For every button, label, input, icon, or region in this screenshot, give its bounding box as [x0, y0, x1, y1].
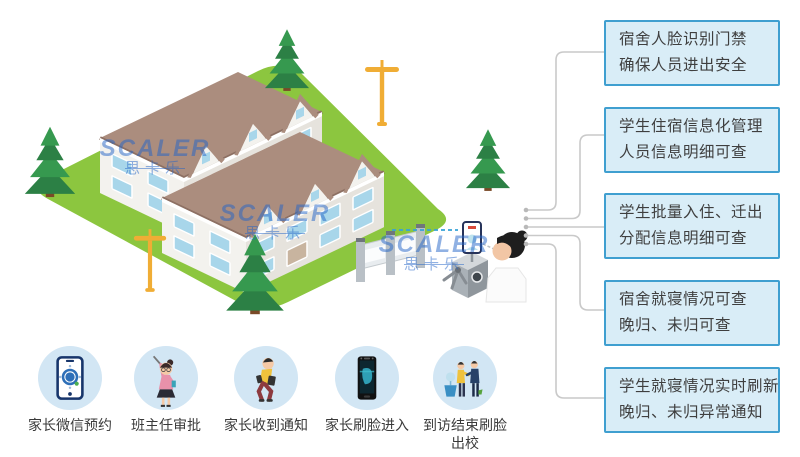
campus-scene-art: [0, 0, 600, 345]
step-wechat-booking: 家长微信预约: [15, 346, 125, 434]
callout-text: 确保人员进出安全: [619, 53, 778, 79]
step-parent-notified: 家长收到通知: [211, 346, 321, 434]
step-label: 家长微信预约: [22, 416, 118, 434]
street-lamp-icon: [365, 60, 399, 126]
step-face-entry: 家长刷脸进入: [312, 346, 422, 434]
step-teacher-approval: 班主任审批: [111, 346, 221, 434]
pine-tree-icon: [466, 129, 510, 191]
callout-text: 晚归、未归可查: [619, 313, 778, 339]
step-label: 家长刷脸进入: [319, 416, 415, 434]
callout-info-management: 学生住宿信息化管理 人员信息明细可查: [604, 107, 780, 173]
callout-batch-checkin: 学生批量入住、迁出 分配信息明细可查: [604, 193, 780, 259]
callout-text: 学生就寝情况实时刷新: [619, 374, 778, 400]
callout-sleep-status: 宿舍就寝情况可查 晚归、未归可查: [604, 280, 780, 346]
callout-text: 分配信息明细可查: [619, 226, 778, 252]
campus-scene: SCALER 思卡乐 SCALER 思卡乐 SCALER 思卡乐 宿舍人脸识别门…: [0, 0, 800, 457]
callout-door-access: 宿舍人脸识别门禁 确保人员进出安全: [604, 20, 780, 86]
wechat-phone-icon: [38, 346, 102, 410]
step-label: 到访结束刷脸出校: [417, 416, 513, 452]
pine-tree-icon: [25, 127, 75, 197]
callout-text: 宿舍人脸识别门禁: [619, 27, 778, 53]
callout-text: 晚归、未归异常通知: [619, 400, 778, 426]
callout-realtime-refresh: 学生就寝情况实时刷新 晚归、未归异常通知: [604, 367, 780, 433]
visit-end-icon: [433, 346, 497, 410]
face-terminal-icon: [335, 346, 399, 410]
step-label: 班主任审批: [118, 416, 214, 434]
callout-text: 学生批量入住、迁出: [619, 200, 778, 226]
step-visit-end-exit: 到访结束刷脸出校: [410, 346, 520, 452]
parent-notified-icon: [234, 346, 298, 410]
callout-text: 学生住宿信息化管理: [619, 114, 778, 140]
street-lamp-icon: [134, 229, 166, 292]
teacher-icon: [134, 346, 198, 410]
callout-text: 人员信息明细可查: [619, 140, 778, 166]
pine-tree-icon: [265, 29, 309, 91]
callout-text: 宿舍就寝情况可查: [619, 287, 778, 313]
visitor-illustration: [486, 231, 528, 303]
step-label: 家长收到通知: [218, 416, 314, 434]
